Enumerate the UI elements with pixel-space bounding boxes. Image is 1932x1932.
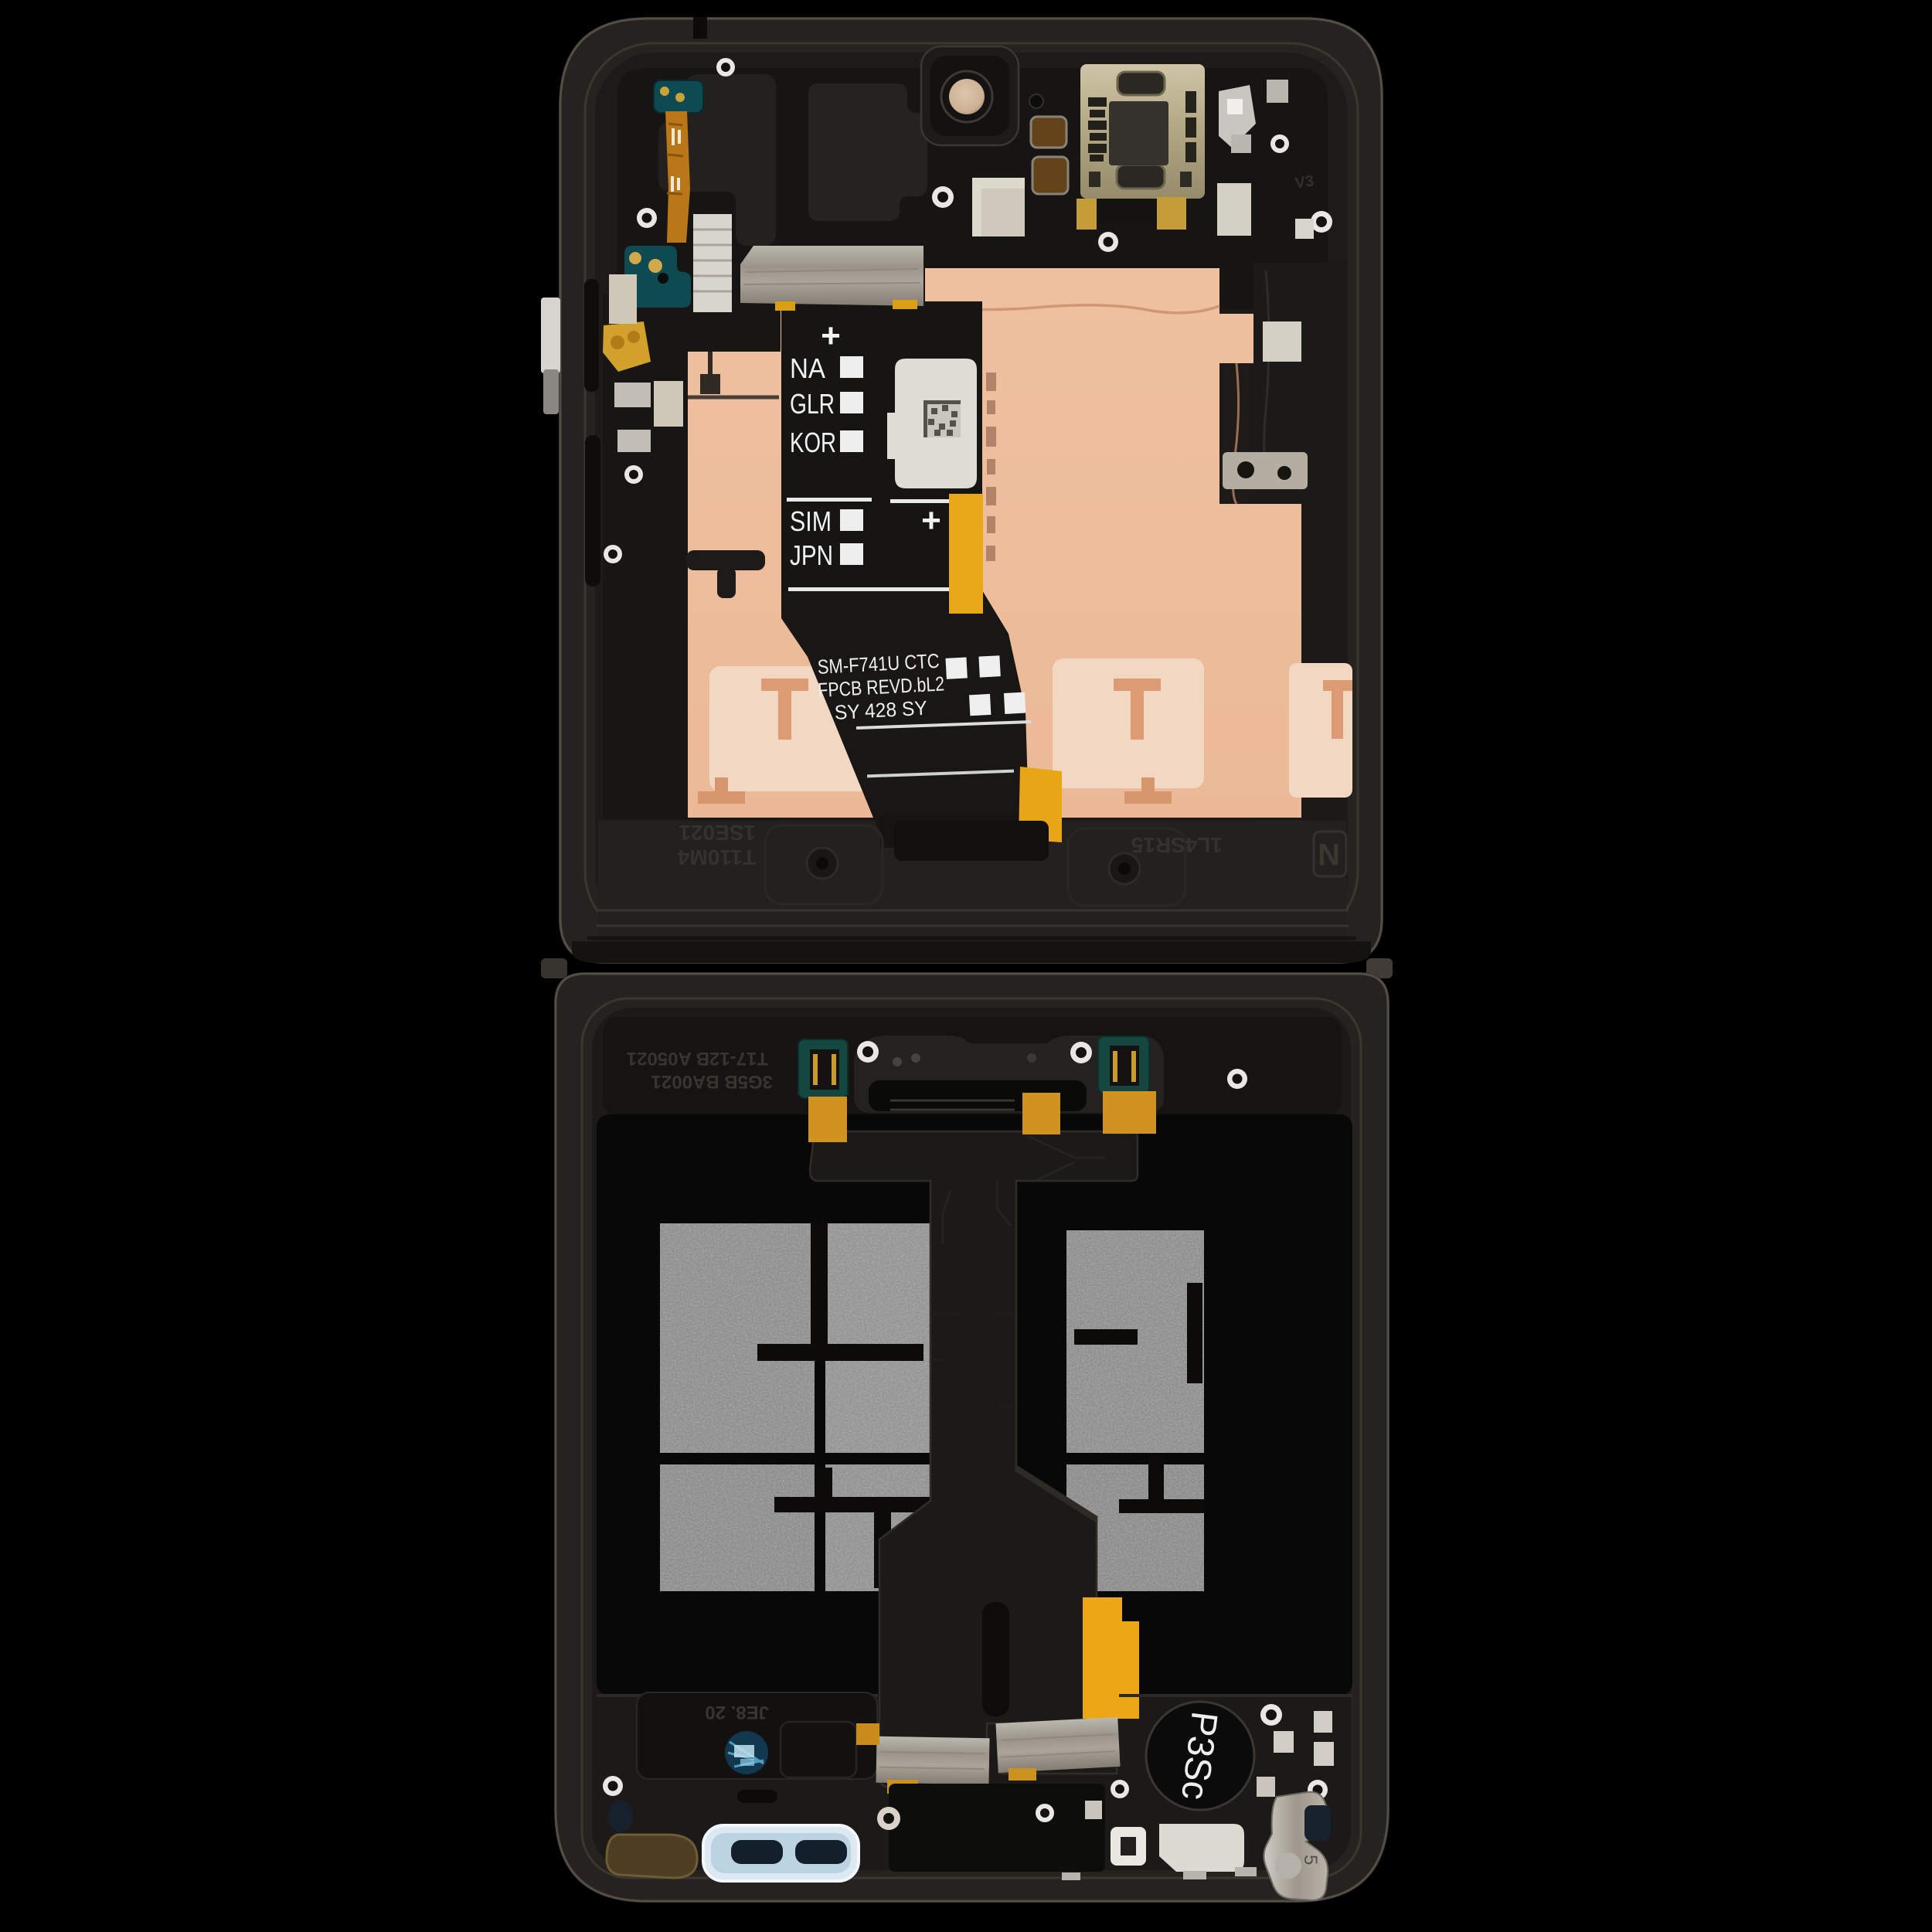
svg-text:KOR: KOR — [790, 427, 836, 458]
svg-text:5: 5 — [1300, 1855, 1321, 1865]
svg-text:SY 428 SY: SY 428 SY — [834, 696, 927, 724]
svg-text:JPN: JPN — [790, 539, 833, 571]
svg-text:SIM: SIM — [790, 505, 832, 537]
svg-text:+: + — [921, 502, 941, 539]
svg-text:1SE021: 1SE021 — [679, 821, 756, 845]
svg-text:GLR: GLR — [790, 388, 835, 420]
svg-text:T110M4: T110M4 — [677, 845, 756, 869]
svg-text:V3: V3 — [1294, 172, 1315, 192]
svg-text:3G5B BA0021: 3G5B BA0021 — [651, 1071, 773, 1092]
svg-text:JE8. 20: JE8. 20 — [705, 1702, 769, 1723]
svg-text:N: N — [1318, 837, 1340, 871]
svg-text:1L4SR15: 1L4SR15 — [1131, 833, 1223, 857]
svg-text:T17-12B A05021: T17-12B A05021 — [627, 1048, 768, 1069]
svg-text:NA: NA — [790, 352, 825, 384]
svg-text:+: + — [821, 317, 841, 355]
